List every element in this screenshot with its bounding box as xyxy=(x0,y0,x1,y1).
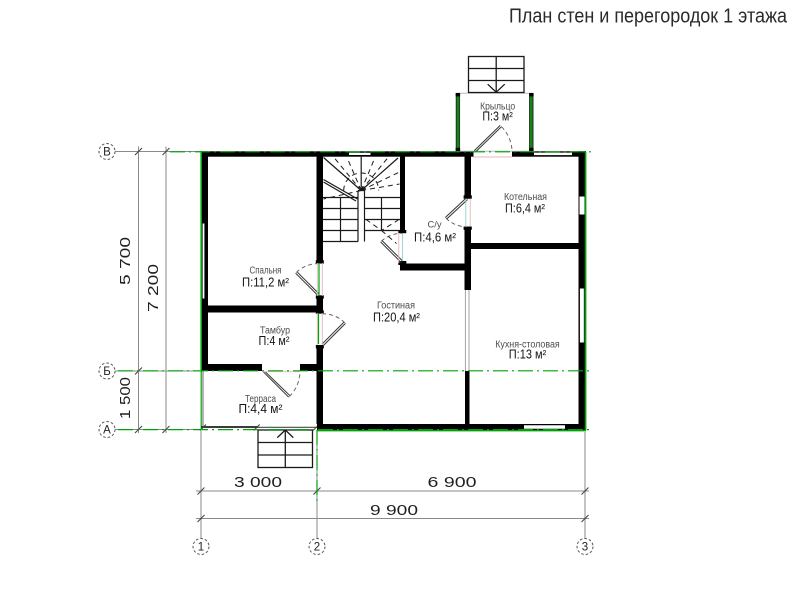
svg-text:3: 3 xyxy=(582,542,588,554)
svg-text:План стен и перегородок 1 этаж: План стен и перегородок 1 этажа xyxy=(509,6,788,28)
svg-text:С/у: С/у xyxy=(428,220,443,230)
svg-text:П:13 м²: П:13 м² xyxy=(509,348,547,362)
svg-text:П:4,4 м²: П:4,4 м² xyxy=(239,402,283,416)
svg-text:2: 2 xyxy=(314,542,320,554)
svg-text:П:11,2 м²: П:11,2 м² xyxy=(242,276,289,290)
svg-text:7 200: 7 200 xyxy=(146,264,162,312)
svg-text:П:4 м²: П:4 м² xyxy=(259,334,290,348)
svg-text:П:20,4 м²: П:20,4 м² xyxy=(373,311,420,325)
svg-text:1: 1 xyxy=(198,542,204,554)
svg-text:6 900: 6 900 xyxy=(428,475,477,491)
svg-text:П:4,6 м²: П:4,6 м² xyxy=(414,231,456,245)
svg-text:П:3 м²: П:3 м² xyxy=(482,110,513,124)
svg-text:3 000: 3 000 xyxy=(234,475,282,491)
svg-text:В: В xyxy=(103,147,111,159)
svg-text:Б: Б xyxy=(103,366,111,378)
svg-text:9 900: 9 900 xyxy=(370,503,418,519)
svg-text:А: А xyxy=(103,425,111,437)
svg-text:5 700: 5 700 xyxy=(118,237,134,285)
svg-text:1 500: 1 500 xyxy=(118,377,134,419)
svg-text:П:6,4 м²: П:6,4 м² xyxy=(505,202,545,216)
